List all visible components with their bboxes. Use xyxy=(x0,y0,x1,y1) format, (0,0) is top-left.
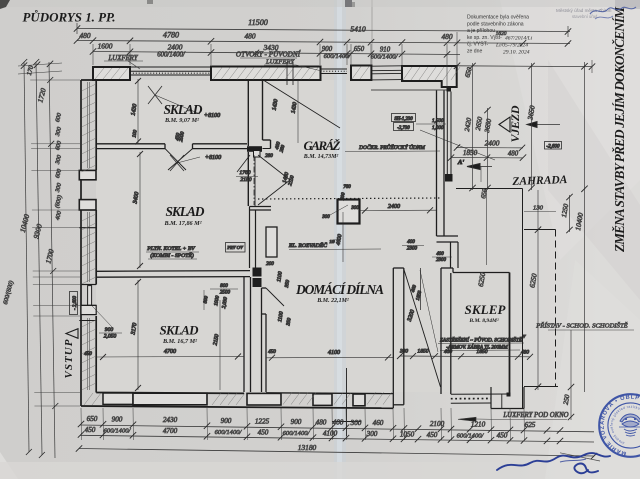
svg-text:Dokumentace byla ověřena: Dokumentace byla ověřena xyxy=(467,15,529,21)
svg-text:800: 800 xyxy=(220,283,228,289)
svg-text:600/1400/: 600/1400/ xyxy=(104,428,132,435)
svg-text:PLYN. KOTEL + BV: PLYN. KOTEL + BV xyxy=(146,246,196,252)
svg-text:2150: 2150 xyxy=(240,177,251,183)
svg-text:SKLAD: SKLAD xyxy=(160,323,200,338)
svg-text:PRV OV: PRV OV xyxy=(226,245,244,250)
svg-text:a je přílohou: a je přílohou xyxy=(467,28,495,34)
svg-text:400: 400 xyxy=(333,419,344,427)
svg-text:300: 300 xyxy=(366,430,378,438)
svg-text:stavební úřad: stavební úřad xyxy=(572,14,598,19)
svg-text:1050: 1050 xyxy=(400,430,415,438)
svg-text:2100: 2100 xyxy=(430,420,445,428)
svg-text:650: 650 xyxy=(87,415,98,423)
svg-text:1Ø: 1Ø xyxy=(329,239,335,244)
svg-text:2400: 2400 xyxy=(168,43,183,52)
svg-text:2430: 2430 xyxy=(163,416,178,424)
svg-text:ZAHRADA: ZAHRADA xyxy=(511,174,568,188)
svg-text:11500: 11500 xyxy=(248,18,268,27)
svg-text:600/1400/: 600/1400/ xyxy=(157,52,186,59)
svg-text:1,500: 1,500 xyxy=(432,118,444,124)
svg-text:480: 480 xyxy=(508,150,519,157)
svg-text:460: 460 xyxy=(373,419,384,427)
svg-text:2300: 2300 xyxy=(436,258,446,263)
svg-text:DOMÁCÍ DÍLNA: DOMÁCÍ DÍLNA xyxy=(295,282,384,297)
svg-text:SKLAD: SKLAD xyxy=(166,204,205,219)
svg-text:B.M. 8,94M²: B.M. 8,94M² xyxy=(468,318,499,324)
svg-text:29.10. 2024: 29.10. 2024 xyxy=(503,50,530,56)
svg-text:650: 650 xyxy=(354,46,365,53)
svg-text:1850: 1850 xyxy=(463,149,478,157)
svg-text:467/2014/Li: 467/2014/Li xyxy=(505,36,533,42)
svg-text:2300: 2300 xyxy=(407,246,418,252)
svg-text:4100: 4100 xyxy=(323,429,338,437)
svg-text:Li/05-79/2024: Li/05-79/2024 xyxy=(495,43,528,49)
svg-text:2400: 2400 xyxy=(485,139,500,148)
svg-text:OTVORY - PŮVODNÍ: OTVORY - PŮVODNÍ xyxy=(236,49,302,59)
svg-text:B.M. 16,7 M²: B.M. 16,7 M² xyxy=(162,338,197,345)
svg-text:ze dne: ze dne xyxy=(467,49,482,55)
svg-text:4700: 4700 xyxy=(164,349,176,355)
svg-text:280: 280 xyxy=(265,153,273,159)
svg-text:LUXFERY POD OKNO: LUXFERY POD OKNO xyxy=(502,412,568,419)
svg-text:760: 760 xyxy=(343,185,351,190)
svg-text:B.M. 9,07 M²: B.M. 9,07 M² xyxy=(164,117,199,124)
svg-text:480: 480 xyxy=(441,32,452,41)
svg-text:PŮDORYS 1. PP.: PŮDORYS 1. PP. xyxy=(23,10,116,25)
svg-text:625: 625 xyxy=(525,421,536,429)
svg-text:400: 400 xyxy=(407,239,415,245)
svg-text:ZMĚNA STAVBY PŘED JEJÍM DOKONČ: ZMĚNA STAVBY PŘED JEJÍM DOKONČENÍM xyxy=(612,6,627,253)
svg-text:480: 480 xyxy=(521,350,529,356)
svg-text:A': A' xyxy=(457,159,464,166)
svg-text:-ARMOV. ZÁBRA TL 200MM: -ARMOV. ZÁBRA TL 200MM xyxy=(446,343,508,351)
svg-text:LUXFERY: LUXFERY xyxy=(265,59,295,66)
svg-text:900: 900 xyxy=(322,46,333,53)
svg-text:480: 480 xyxy=(316,418,327,426)
svg-text:600/1400/: 600/1400/ xyxy=(215,429,243,436)
svg-text:450: 450 xyxy=(84,351,92,357)
svg-text:1,000: 1,000 xyxy=(432,125,444,131)
svg-text:380: 380 xyxy=(399,349,408,355)
svg-text:EL. ROZVADĚČ: EL. ROZVADĚČ xyxy=(288,241,327,249)
svg-text:450: 450 xyxy=(497,432,508,440)
svg-text:910: 910 xyxy=(380,46,391,53)
svg-text:SKLEP: SKLEP xyxy=(465,302,507,317)
svg-text:-2,730: -2,730 xyxy=(397,126,410,131)
svg-text:podle stavebního zákona: podle stavebního zákona xyxy=(467,21,524,27)
svg-text:300: 300 xyxy=(351,206,359,211)
svg-text:DOČKR. PRŮŽUCKÝ ÚDNM: DOČKR. PRŮŽUCKÝ ÚDNM xyxy=(358,143,425,151)
svg-text:1600: 1600 xyxy=(98,42,113,51)
svg-text:B.M. 22,1M²: B.M. 22,1M² xyxy=(316,298,349,304)
svg-text:450: 450 xyxy=(427,431,438,439)
svg-text:600/1400/: 600/1400/ xyxy=(324,53,352,60)
svg-text:+8100: +8100 xyxy=(204,113,220,119)
svg-text:čj. VYST-: čj. VYST- xyxy=(467,42,489,48)
svg-text:-2,600: -2,600 xyxy=(546,143,560,149)
svg-text:2,050: 2,050 xyxy=(104,334,117,340)
svg-text:900: 900 xyxy=(112,416,123,424)
svg-text:1850: 1850 xyxy=(417,349,428,355)
svg-text:GARÁŽ: GARÁŽ xyxy=(304,138,341,153)
svg-text:900: 900 xyxy=(291,418,302,426)
svg-text:PŘÍSTAV - SCHOD. SCHODIŠTĚ: PŘÍSTAV - SCHOD. SCHODIŠTĚ xyxy=(535,322,628,330)
svg-text:SKLAD: SKLAD xyxy=(164,102,203,117)
svg-text:450: 450 xyxy=(258,428,269,436)
svg-text:SH-1,230: SH-1,230 xyxy=(394,117,413,122)
svg-text:5410: 5410 xyxy=(350,25,366,34)
svg-text:4700: 4700 xyxy=(163,427,178,435)
svg-text:300: 300 xyxy=(350,419,362,427)
svg-text:480: 480 xyxy=(79,31,90,40)
svg-text:ZASTŘEŠENÍ ~ PŮVOD. SCHODIŠTĚ: ZASTŘEŠENÍ ~ PŮVOD. SCHODIŠTĚ xyxy=(440,336,523,344)
svg-text:B.M. 17,86 M²: B.M. 17,86 M² xyxy=(163,220,201,227)
svg-text:480: 480 xyxy=(244,32,255,41)
svg-text:600/1400/: 600/1400/ xyxy=(371,53,399,60)
svg-text:VSTUP: VSTUP xyxy=(63,339,75,378)
svg-text:600/1400/: 600/1400/ xyxy=(457,432,485,439)
svg-text:1225: 1225 xyxy=(255,417,270,425)
svg-text:400: 400 xyxy=(436,252,444,257)
svg-text:2400: 2400 xyxy=(388,204,400,210)
svg-text:1760: 1760 xyxy=(239,170,250,176)
svg-text:+8100: +8100 xyxy=(205,155,221,161)
svg-text:300: 300 xyxy=(322,215,330,220)
svg-text:4780: 4780 xyxy=(163,31,179,40)
svg-text:450: 450 xyxy=(85,426,96,434)
svg-text:900: 900 xyxy=(105,327,114,333)
svg-text:B.M. 14,73M²: B.M. 14,73M² xyxy=(303,154,339,160)
svg-text:4100: 4100 xyxy=(328,350,340,356)
svg-text:130: 130 xyxy=(533,205,544,212)
svg-text:900: 900 xyxy=(221,417,232,425)
svg-text:ke sp. zn. Výst-: ke sp. zn. Výst- xyxy=(467,35,502,41)
svg-text:Městský úřad města Zbiroh: Městský úřad města Zbiroh xyxy=(556,8,612,13)
svg-text:200: 200 xyxy=(266,261,274,267)
svg-text:2500: 2500 xyxy=(220,290,231,296)
svg-text:- 2,600: - 2,600 xyxy=(73,296,78,310)
svg-text:600/1400/: 600/1400/ xyxy=(283,430,311,437)
svg-text:VJEZD: VJEZD xyxy=(508,105,522,142)
svg-text:450: 450 xyxy=(268,349,276,355)
svg-text:1210: 1210 xyxy=(471,420,486,428)
svg-text:13180: 13180 xyxy=(298,443,317,452)
